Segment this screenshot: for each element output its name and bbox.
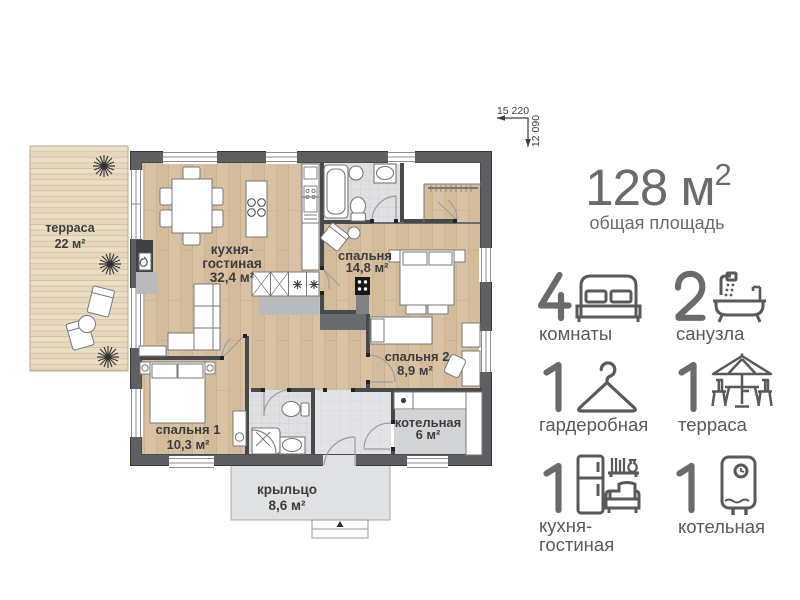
svg-text:спальня 2: спальня 2: [385, 349, 450, 364]
svg-text:22 м²: 22 м²: [55, 237, 86, 251]
svg-text:гостиная: гостиная: [202, 256, 261, 271]
svg-text:терраса: терраса: [45, 221, 95, 235]
svg-text:санузла: санузла: [676, 323, 745, 344]
svg-text:комнаты: комнаты: [539, 323, 612, 344]
svg-text:гардеробная: гардеробная: [539, 414, 648, 435]
svg-text:кухня-: кухня-: [211, 242, 253, 257]
svg-text:кухня-: кухня-: [539, 515, 592, 536]
svg-text:14,8 м²: 14,8 м²: [346, 260, 390, 275]
svg-text:8,6 м²: 8,6 м²: [269, 498, 307, 513]
svg-text:котельная: котельная: [678, 516, 765, 537]
svg-text:10,3 м²: 10,3 м²: [167, 437, 211, 452]
svg-text:12 090: 12 090: [530, 115, 542, 147]
svg-text:128 м2: 128 м2: [585, 157, 731, 216]
svg-text:спальня 1: спальня 1: [156, 422, 221, 437]
svg-text:15 220: 15 220: [497, 105, 529, 117]
svg-text:общая площадь: общая площадь: [589, 213, 724, 233]
svg-text:8,9 м²: 8,9 м²: [397, 363, 433, 378]
svg-text:крыльцо: крыльцо: [257, 482, 317, 497]
svg-text:гостиная: гостиная: [539, 534, 614, 555]
svg-text:терраса: терраса: [678, 414, 748, 435]
svg-text:32,4 м²: 32,4 м²: [210, 270, 255, 285]
svg-text:6 м²: 6 м²: [416, 427, 441, 442]
